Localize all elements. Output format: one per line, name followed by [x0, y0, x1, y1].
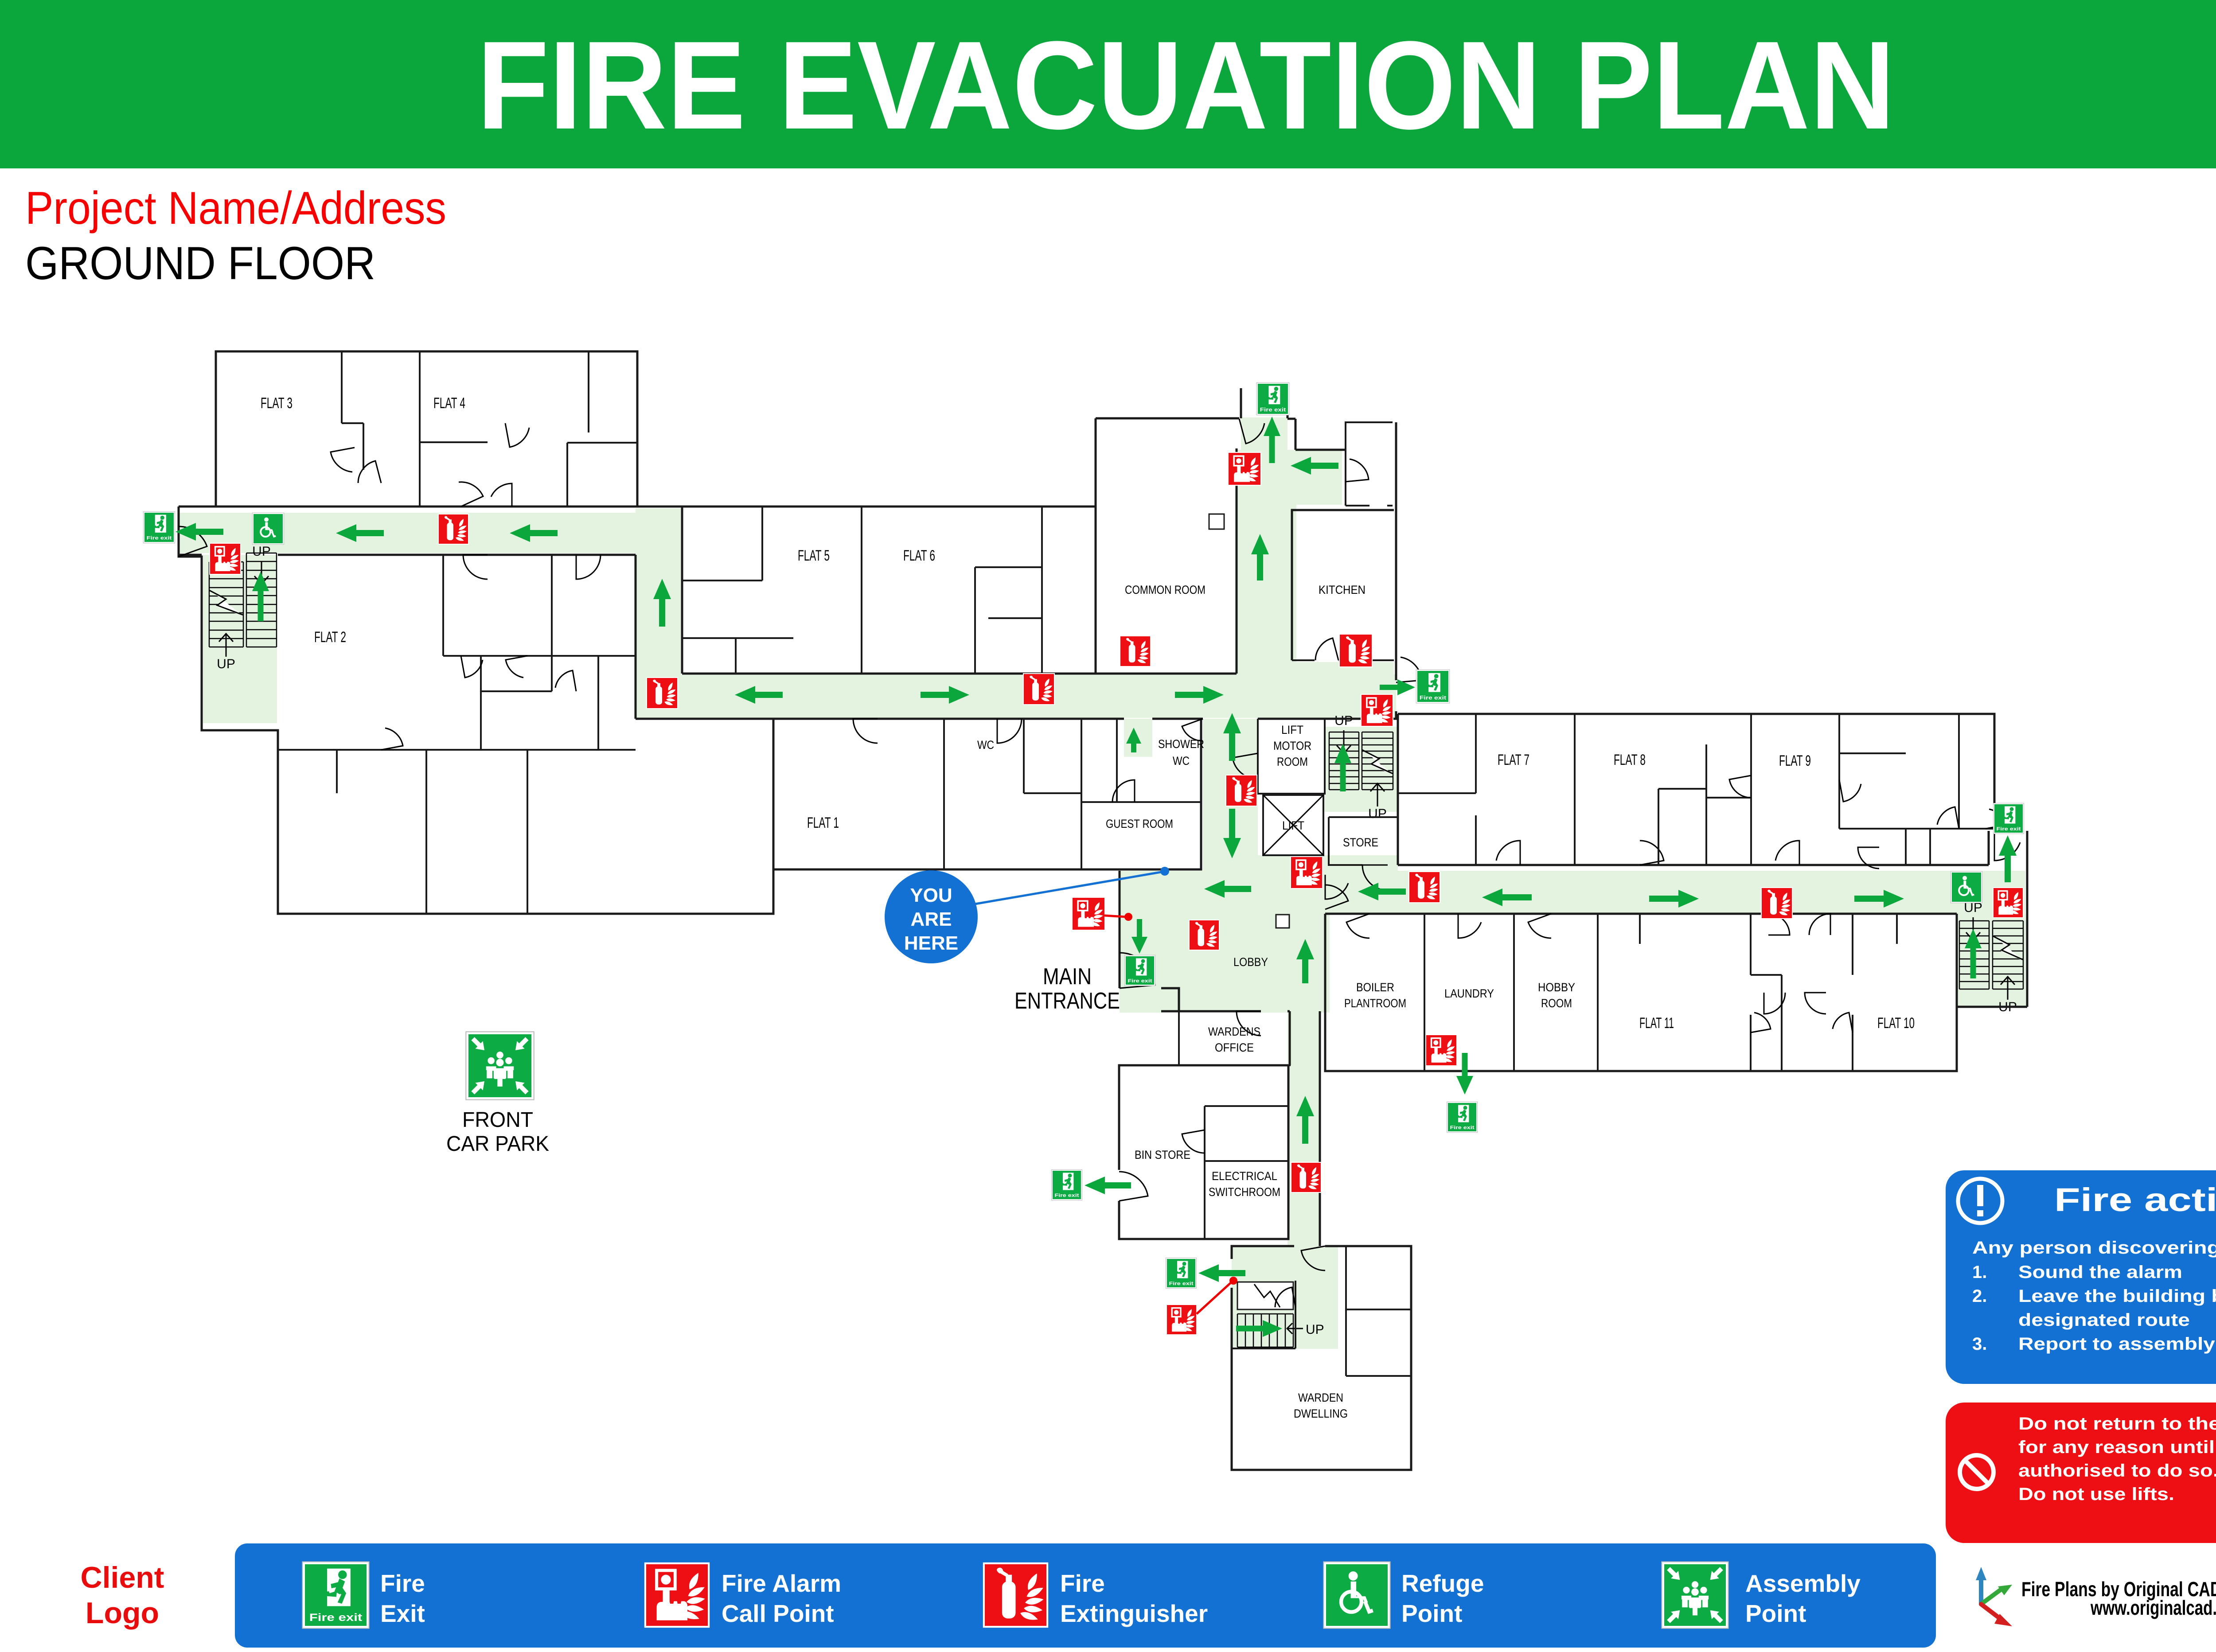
- svg-text:UP: UP: [1306, 1322, 1324, 1337]
- svg-text:FLAT 5: FLAT 5: [798, 547, 830, 564]
- svg-text:1.: 1.: [1972, 1262, 1987, 1282]
- svg-text:UP: UP: [1368, 807, 1387, 821]
- svg-text:UP: UP: [1334, 713, 1353, 728]
- svg-text:Project Name/Address: Project Name/Address: [25, 183, 446, 234]
- svg-text:FLAT 3: FLAT 3: [261, 395, 293, 412]
- svg-text:FLAT 10: FLAT 10: [1877, 1015, 1915, 1032]
- svg-text:DWELLING: DWELLING: [1294, 1407, 1348, 1420]
- svg-text:LIFT: LIFT: [1282, 819, 1304, 832]
- svg-text:FLAT 1: FLAT 1: [807, 814, 839, 831]
- svg-text:Assembly: Assembly: [1745, 1570, 1861, 1597]
- svg-text:FLAT 9: FLAT 9: [1779, 752, 1811, 769]
- svg-text:MOTOR: MOTOR: [1273, 739, 1311, 752]
- svg-text:Fire action: Fire action: [2054, 1181, 2216, 1218]
- svg-text:SHOWER: SHOWER: [1158, 737, 1204, 751]
- svg-text:WC: WC: [977, 738, 994, 752]
- svg-text:YOU: YOU: [910, 884, 952, 906]
- svg-text:Point: Point: [1745, 1600, 1806, 1627]
- svg-text:Any person discovering a fire:: Any person discovering a fire:: [1972, 1238, 2216, 1258]
- svg-text:UP: UP: [252, 544, 271, 559]
- svg-text:ROOM: ROOM: [1277, 755, 1308, 768]
- svg-text:Do not use lifts.: Do not use lifts.: [2018, 1484, 2174, 1504]
- svg-text:SWITCHROOM: SWITCHROOM: [1209, 1185, 1280, 1199]
- svg-text:STORE: STORE: [1343, 836, 1378, 849]
- svg-text:Fire: Fire: [1060, 1570, 1105, 1597]
- svg-text:LAUNDRY: LAUNDRY: [1444, 987, 1494, 1000]
- svg-text:Exit: Exit: [380, 1600, 425, 1627]
- svg-text:ARE: ARE: [911, 908, 952, 930]
- svg-text:FLAT 8: FLAT 8: [1614, 752, 1646, 768]
- svg-text:Extinguisher: Extinguisher: [1060, 1600, 1208, 1627]
- svg-text:FLAT 11: FLAT 11: [1639, 1015, 1674, 1032]
- svg-text:GUEST ROOM: GUEST ROOM: [1106, 817, 1173, 830]
- svg-text:GROUND FLOOR: GROUND FLOOR: [25, 238, 375, 289]
- svg-text:designated route: designated route: [2018, 1310, 2190, 1330]
- svg-text:Refuge: Refuge: [1401, 1570, 1484, 1597]
- svg-text:ELECTRICAL: ELECTRICAL: [1212, 1169, 1277, 1183]
- svg-text:FLAT 6: FLAT 6: [903, 547, 935, 564]
- svg-text:LOBBY: LOBBY: [1233, 955, 1268, 969]
- svg-text:WARDEN: WARDEN: [1298, 1391, 1343, 1404]
- svg-text:PLANTROOM: PLANTROOM: [1344, 997, 1406, 1010]
- svg-text:authorised to do so.: authorised to do so.: [2018, 1461, 2216, 1481]
- svg-text:ROOM: ROOM: [1541, 997, 1572, 1010]
- svg-text:2.: 2.: [1972, 1286, 1987, 1306]
- svg-text:ENTRANCE: ENTRANCE: [1014, 988, 1120, 1014]
- svg-text:3.: 3.: [1972, 1334, 1987, 1354]
- svg-text:FRONT: FRONT: [462, 1108, 533, 1132]
- svg-text:Client: Client: [81, 1561, 164, 1594]
- svg-text:Leave the building by the: Leave the building by the: [2018, 1286, 2216, 1306]
- svg-text:HERE: HERE: [904, 932, 958, 954]
- svg-text:UP: UP: [217, 657, 235, 671]
- svg-text:BIN STORE: BIN STORE: [1135, 1148, 1190, 1161]
- svg-text:MAIN: MAIN: [1043, 964, 1092, 990]
- svg-text:Do not return to the building: Do not return to the building: [2018, 1414, 2216, 1434]
- svg-text:COMMON ROOM: COMMON ROOM: [1125, 583, 1206, 596]
- svg-text:KITCHEN: KITCHEN: [1319, 583, 1365, 596]
- svg-text:Fire Alarm: Fire Alarm: [722, 1570, 841, 1597]
- svg-text:FLAT 7: FLAT 7: [1498, 752, 1529, 768]
- svg-text:HOBBY: HOBBY: [1538, 981, 1575, 994]
- svg-text:for any reason until: for any reason until: [2018, 1438, 2215, 1457]
- svg-text:FLAT 2: FLAT 2: [314, 629, 346, 646]
- svg-text:Fire: Fire: [380, 1570, 425, 1597]
- svg-text:WC: WC: [1173, 754, 1190, 768]
- svg-text:WARDENS: WARDENS: [1208, 1025, 1260, 1038]
- svg-text:Point: Point: [1401, 1600, 1462, 1627]
- svg-text:Logo: Logo: [86, 1596, 159, 1630]
- svg-text:Report to assembly point: Report to assembly point: [2018, 1334, 2216, 1354]
- svg-text:Sound the alarm: Sound the alarm: [2018, 1262, 2182, 1282]
- svg-text:FLAT 4: FLAT 4: [433, 395, 465, 412]
- svg-text:www.originalcad.co.uk: www.originalcad.co.uk: [2090, 1596, 2216, 1619]
- svg-text:CAR PARK: CAR PARK: [446, 1132, 549, 1156]
- svg-text:BOILER: BOILER: [1356, 981, 1394, 994]
- svg-text:Call Point: Call Point: [722, 1600, 834, 1627]
- svg-text:FIRE EVACUATION PLAN: FIRE EVACUATION PLAN: [477, 15, 1895, 155]
- svg-text:OFFICE: OFFICE: [1215, 1041, 1254, 1054]
- svg-text:LIFT: LIFT: [1281, 723, 1303, 736]
